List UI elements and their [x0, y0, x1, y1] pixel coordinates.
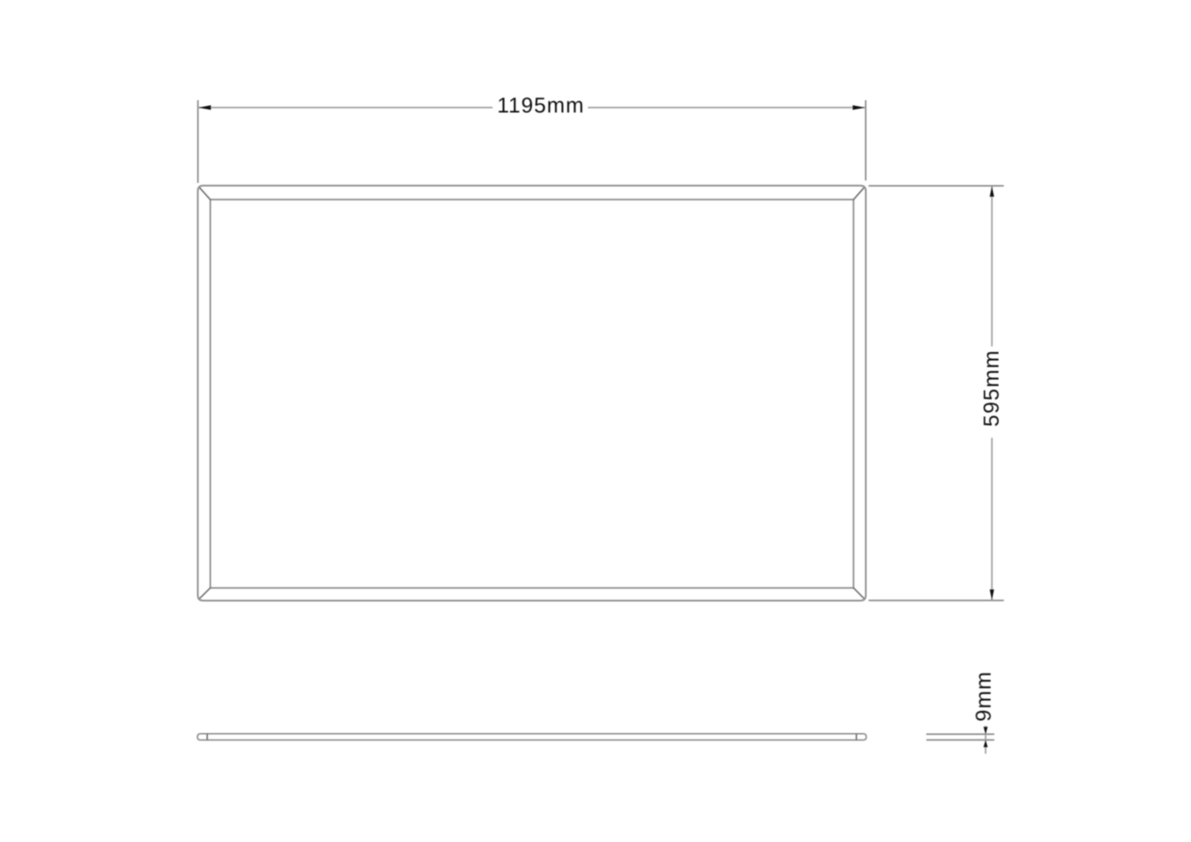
svg-text:1195mm: 1195mm [497, 94, 584, 118]
svg-text:9mm: 9mm [972, 671, 996, 722]
svg-text:595mm: 595mm [979, 349, 1003, 426]
